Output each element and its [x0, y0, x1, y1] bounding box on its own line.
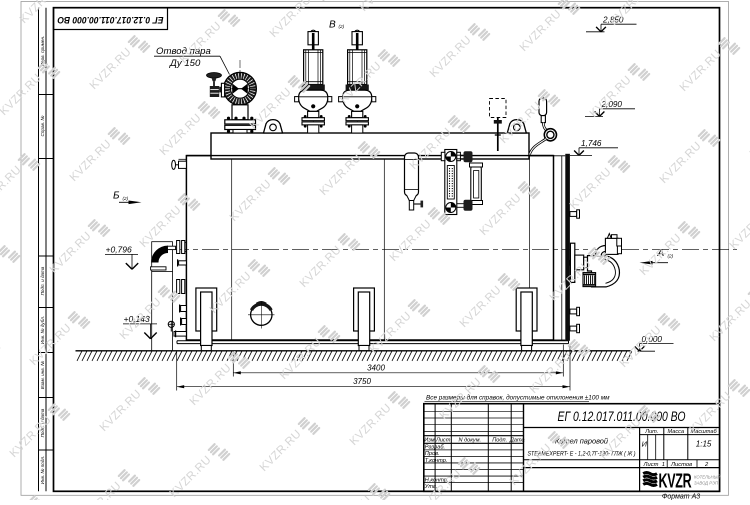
svg-text:1:15: 1:15 [696, 440, 712, 449]
svg-text:Т.контр.: Т.контр. [425, 458, 448, 464]
svg-text:Разраб.: Разраб. [425, 445, 445, 451]
svg-text:Лист: Лист [643, 462, 659, 468]
svg-text:КОТЕЛЬНЫЙ: КОТЕЛЬНЫЙ [694, 474, 720, 479]
svg-text:(2): (2) [123, 196, 129, 201]
svg-text:KVZR: KVZR [659, 469, 692, 492]
svg-text:Взам. инв. №: Взам. инв. № [40, 361, 45, 389]
svg-text:Подп. и дата: Подп. и дата [40, 266, 45, 295]
svg-text:1: 1 [662, 462, 665, 468]
svg-text:N докум.: N докум. [458, 438, 481, 444]
svg-text:ЕГ 0.12.017.011.00.000 ВО: ЕГ 0.12.017.011.00.000 ВО [57, 15, 164, 25]
svg-text:В: В [329, 20, 336, 31]
svg-text:ЗАВОД РЭП: ЗАВОД РЭП [694, 481, 719, 486]
svg-text:Инв. № дубл.: Инв. № дубл. [40, 316, 45, 344]
svg-text:Пров.: Пров. [425, 451, 440, 457]
svg-text:Формат А3: Формат А3 [662, 493, 700, 500]
svg-text:Инв. № подл.: Инв. № подл. [40, 456, 45, 485]
svg-text:Подп.: Подп. [492, 438, 507, 444]
svg-text:Лист: Лист [435, 438, 451, 444]
svg-text:ЕГ 0.12.017.011.00.000 ВО: ЕГ 0.12.017.011.00.000 ВО [558, 409, 686, 424]
svg-text:Листов: Листов [670, 462, 692, 468]
svg-text:Масса: Масса [668, 429, 685, 435]
svg-text:3400: 3400 [367, 363, 385, 372]
svg-text:Дата: Дата [509, 438, 525, 444]
svg-text:И: И [642, 440, 648, 449]
svg-text:Лит.: Лит. [644, 429, 658, 435]
svg-text:Справ. №: Справ. № [40, 116, 45, 137]
svg-text:(2): (2) [339, 24, 345, 29]
svg-text:Изм: Изм [424, 438, 435, 444]
svg-text:+0,796: +0,796 [106, 245, 133, 255]
svg-text:3750: 3750 [353, 377, 371, 386]
svg-text:Б: Б [113, 191, 120, 202]
svg-text:1,746: 1,746 [581, 139, 602, 148]
